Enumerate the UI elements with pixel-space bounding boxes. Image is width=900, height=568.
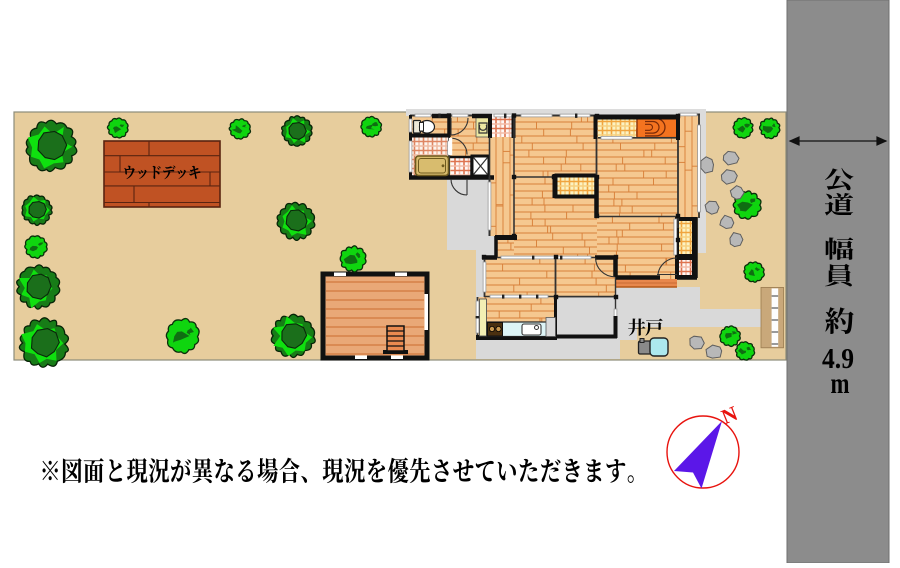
svg-text:m: m xyxy=(831,367,850,400)
